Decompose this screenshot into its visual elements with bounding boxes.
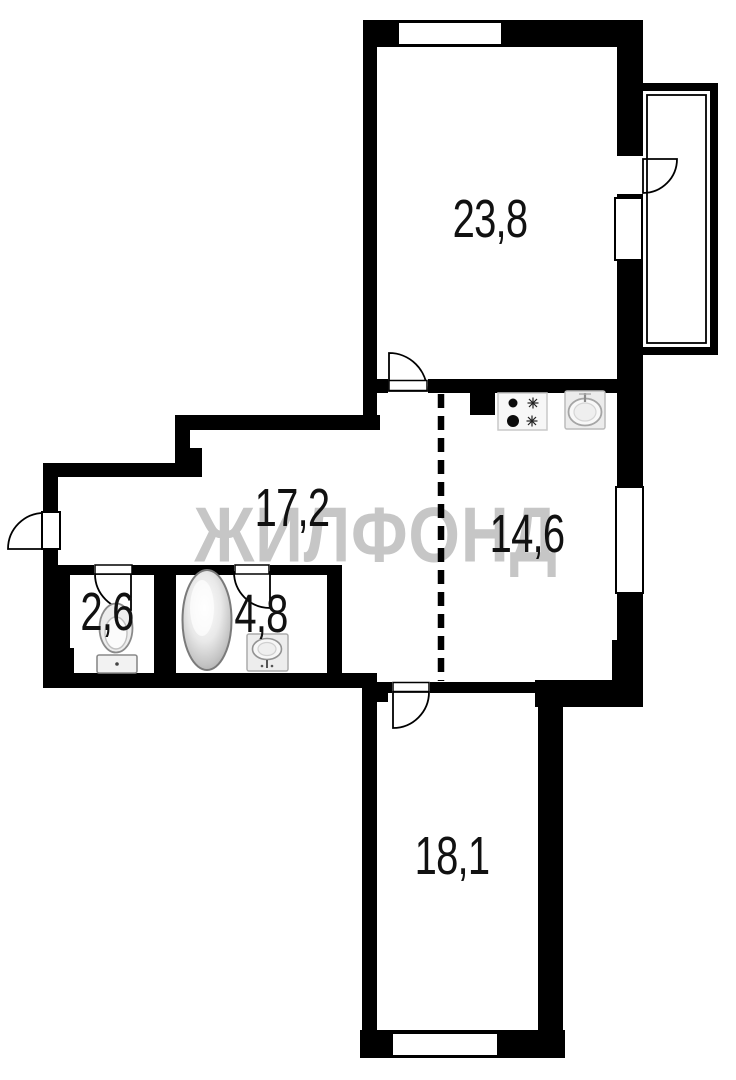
wall bbox=[362, 682, 377, 1058]
balcony-wall bbox=[643, 83, 718, 91]
stove-icon bbox=[498, 393, 547, 430]
door-sill bbox=[95, 565, 132, 574]
door-sill bbox=[393, 683, 429, 692]
door-opening bbox=[616, 156, 643, 194]
kitchen-sink-icon bbox=[565, 391, 605, 429]
wall bbox=[363, 20, 377, 430]
balcony-wall bbox=[643, 347, 718, 355]
room-area-label-4-8: 4,8 bbox=[234, 583, 287, 645]
wall bbox=[617, 20, 643, 707]
wall bbox=[58, 648, 74, 673]
room-area-label-18-1: 18,1 bbox=[415, 825, 490, 887]
entrance-door-leaf bbox=[42, 512, 60, 549]
door-arc-icon bbox=[643, 159, 677, 193]
door-arc-icon bbox=[8, 513, 44, 549]
door-sill bbox=[235, 565, 269, 574]
floor-plan: ЖИЛФОНД bbox=[0, 0, 736, 1080]
wall-vent-stub bbox=[470, 393, 495, 415]
room-area-label-2-6: 2,6 bbox=[80, 581, 133, 643]
balcony-glazing-line bbox=[647, 95, 706, 343]
window-icon bbox=[616, 487, 643, 593]
wall bbox=[327, 565, 342, 688]
wall bbox=[538, 693, 563, 1058]
window-icon bbox=[398, 22, 502, 45]
floor-plan-drawing bbox=[0, 0, 736, 1080]
door-sill bbox=[389, 381, 427, 391]
wall bbox=[154, 565, 176, 688]
wall bbox=[43, 673, 377, 688]
window-icon bbox=[615, 198, 642, 260]
room-area-label-14-6: 14,6 bbox=[490, 503, 565, 565]
balcony-wall bbox=[710, 83, 718, 355]
wall bbox=[43, 463, 58, 688]
room-area-label-17-2: 17,2 bbox=[255, 477, 330, 539]
bathtub-icon bbox=[183, 570, 232, 670]
door-arc-icon bbox=[393, 692, 429, 728]
wall bbox=[43, 463, 202, 477]
room-area-label-23-8: 23,8 bbox=[453, 188, 528, 250]
wall bbox=[175, 415, 380, 430]
window-icon bbox=[392, 1033, 498, 1056]
